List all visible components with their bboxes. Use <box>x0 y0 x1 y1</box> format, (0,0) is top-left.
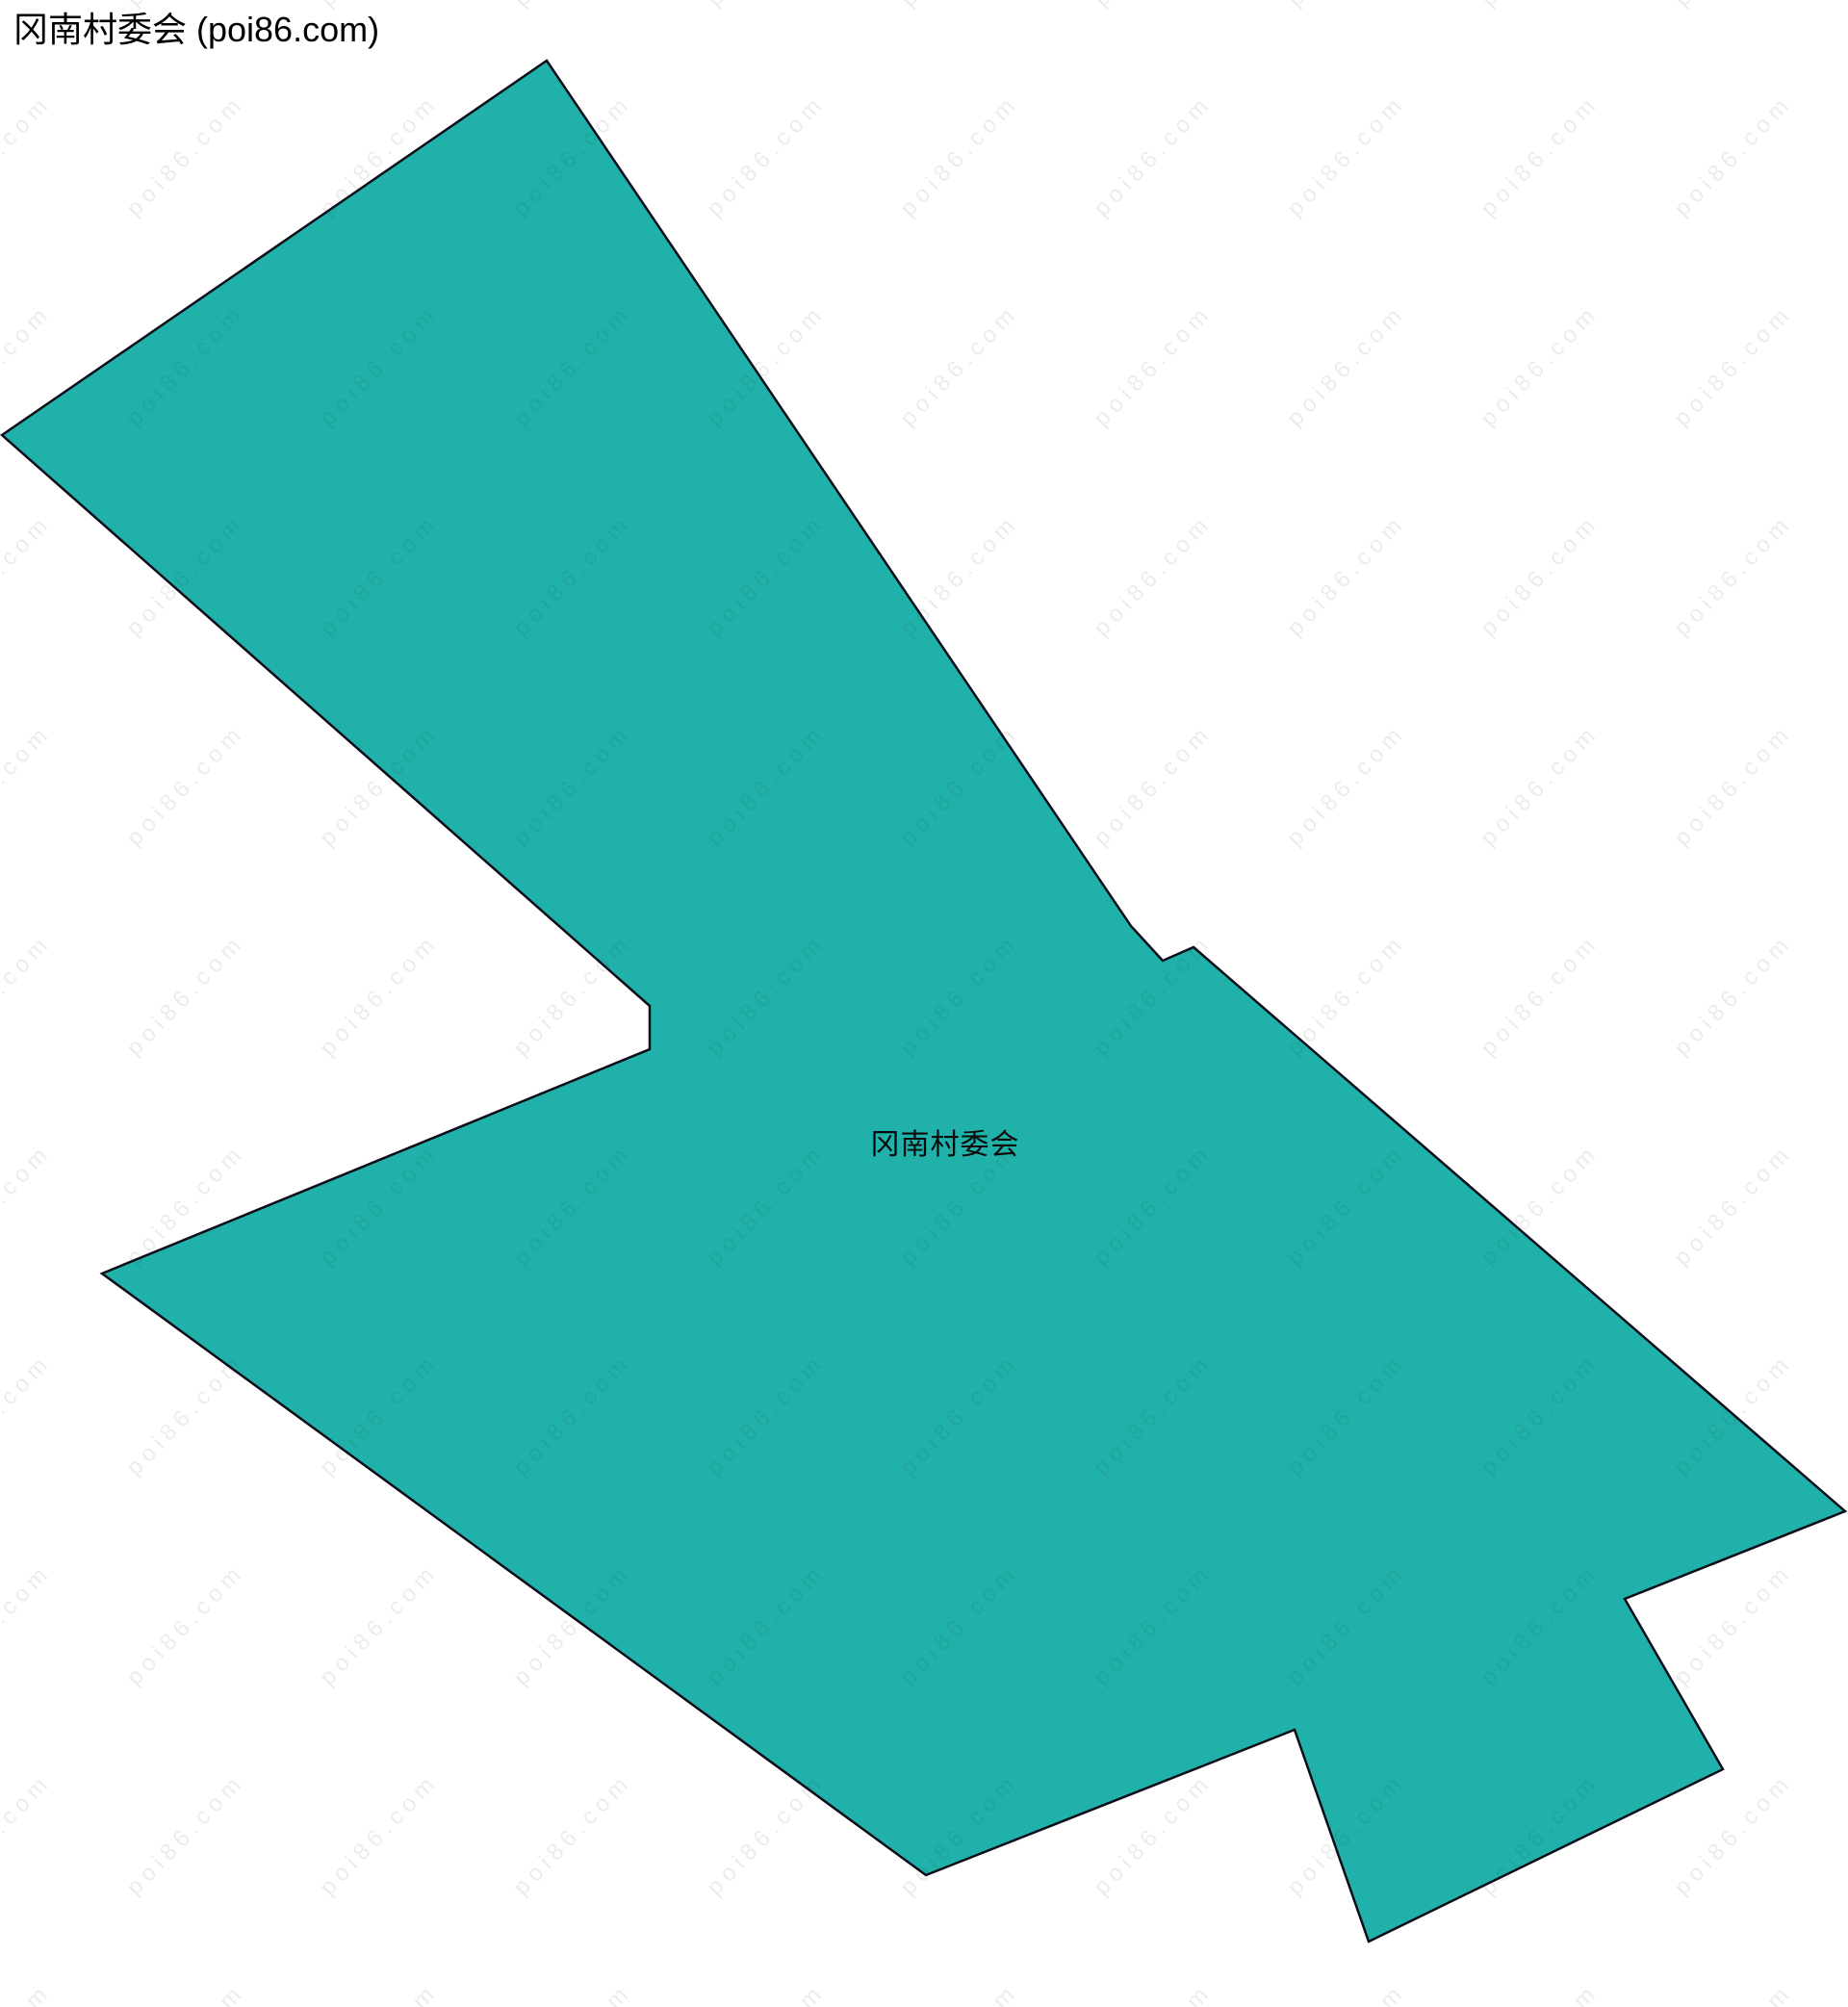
map-page: { "header": { "title": "冈南村委会 (poi86.com… <box>0 0 1848 2007</box>
page-title: 冈南村委会 (poi86.com) <box>13 8 379 51</box>
region-polygon <box>2 61 1845 1942</box>
region-map <box>0 0 1848 2007</box>
region-label: 冈南村委会 <box>871 1120 1020 1163</box>
